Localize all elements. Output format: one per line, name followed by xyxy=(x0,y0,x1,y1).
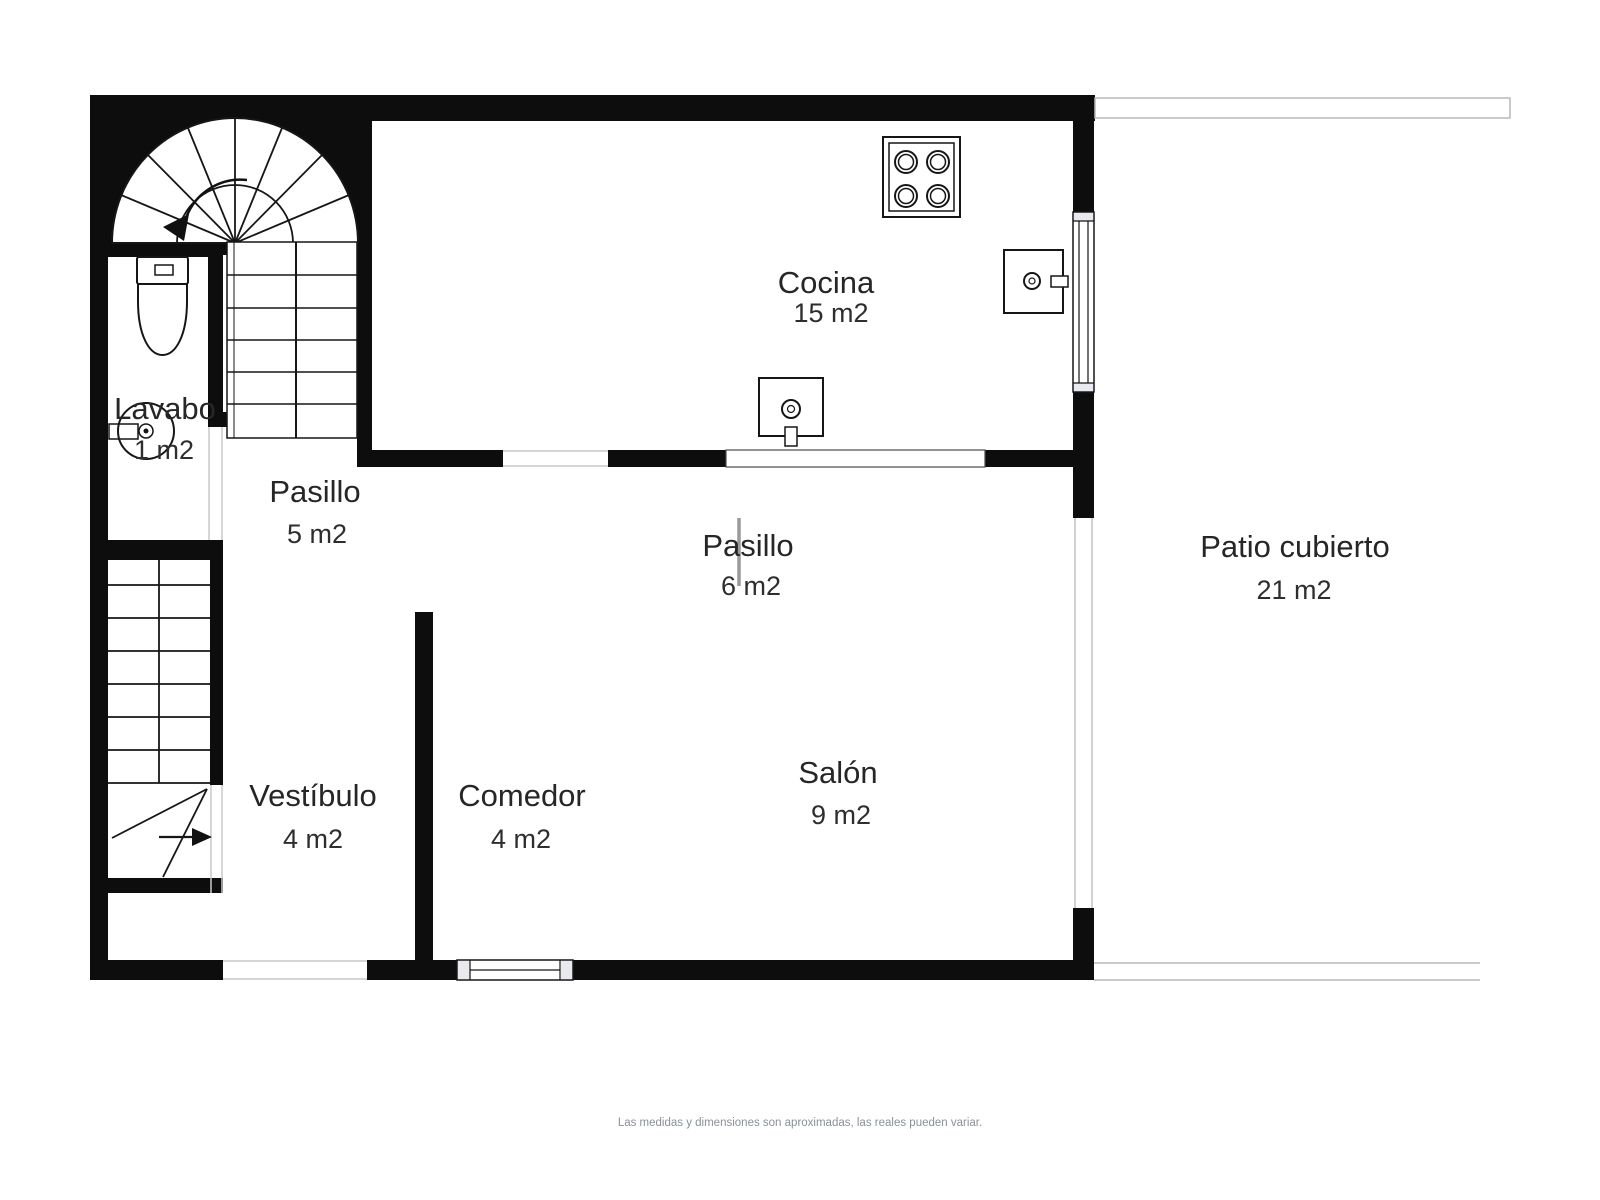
stairs-arrowhead-icon xyxy=(192,828,212,846)
room-name: Pasillo xyxy=(269,474,360,509)
toilet-button xyxy=(155,265,173,275)
patio-top-band xyxy=(1095,98,1510,118)
kitchen-wall-sink-icon xyxy=(1004,250,1068,313)
room-area: 6 m2 xyxy=(721,571,781,601)
room-area: 4 m2 xyxy=(283,824,343,854)
room-name: Salón xyxy=(798,755,877,790)
room-name: Vestíbulo xyxy=(249,778,377,813)
stove-icon xyxy=(883,137,960,217)
wall-stair-separator xyxy=(90,540,223,560)
room-label-pasillo-mid: Pasillo 6 m2 xyxy=(702,528,793,601)
straight-staircase-upper xyxy=(227,242,357,438)
glass-opening-patio xyxy=(1075,518,1092,908)
room-area: 15 m2 xyxy=(793,298,868,328)
wall-kitchen-bottom-1 xyxy=(357,450,503,467)
room-area: 4 m2 xyxy=(491,824,551,854)
wall-kitchen-bottom-3 xyxy=(985,450,1094,467)
room-name: Pasillo xyxy=(702,528,793,563)
room-area: 21 m2 xyxy=(1256,575,1331,605)
room-name: Patio cubierto xyxy=(1200,529,1390,564)
room-label-comedor: Comedor 4 m2 xyxy=(458,778,586,854)
staircase-lower xyxy=(108,560,212,877)
room-label-patio: Patio cubierto 21 m2 xyxy=(1200,529,1390,605)
room-name: Cocina xyxy=(778,265,875,300)
window-cap-bottom xyxy=(1074,383,1093,391)
toilet-icon xyxy=(137,257,188,355)
opening-frame xyxy=(726,450,985,467)
wall-comedor-left xyxy=(415,612,433,980)
room-label-pasillo-top: Pasillo 5 m2 xyxy=(269,474,360,549)
wall-right-upper xyxy=(1073,121,1094,212)
wall-stairs-kitchen xyxy=(357,95,372,467)
wall-left xyxy=(90,95,108,980)
toilet-bowl xyxy=(138,284,187,355)
sink-drain xyxy=(1024,273,1040,289)
wall-stairwell-right xyxy=(210,560,223,785)
sink-drain-dot xyxy=(144,429,149,434)
window-bottom-wall xyxy=(457,960,573,980)
stove-outline xyxy=(883,137,960,217)
wall-lavabo-top xyxy=(90,245,223,257)
window-right-wall xyxy=(1073,212,1094,392)
window-cap-right xyxy=(561,961,572,979)
wall-bottom-1 xyxy=(90,960,223,980)
room-label-cocina: Cocina 15 m2 xyxy=(778,265,875,328)
sink-drain xyxy=(782,400,800,418)
window-cap-left xyxy=(458,961,470,979)
wall-kitchen-bottom-2 xyxy=(608,450,726,467)
kitchen-pass-opening xyxy=(726,450,985,467)
room-label-salon: Salón 9 m2 xyxy=(798,755,877,830)
floorplan-svg: Cocina 15 m2 Lavabo 1 m2 Pasillo 5 m2 Pa… xyxy=(0,0,1600,1200)
wall-bottom-3 xyxy=(573,960,1094,980)
room-label-vestibulo: Vestíbulo 4 m2 xyxy=(249,778,377,854)
window-frame xyxy=(1073,212,1094,392)
wall-bottom-2 xyxy=(367,960,457,980)
sink-tap xyxy=(785,427,797,446)
room-name: Lavabo xyxy=(114,391,216,426)
door-openings xyxy=(209,427,739,979)
room-area: 9 m2 xyxy=(811,800,871,830)
wall-top xyxy=(372,95,1095,121)
room-area: 1 m2 xyxy=(134,435,194,465)
window-cap-top xyxy=(1074,213,1093,221)
room-name: Comedor xyxy=(458,778,586,813)
wall-stairwell-bottom xyxy=(108,878,223,893)
floorplan-canvas: Cocina 15 m2 Lavabo 1 m2 Pasillo 5 m2 Pa… xyxy=(0,0,1600,1200)
footer-disclaimer: Las medidas y dimensiones son aproximada… xyxy=(618,1117,982,1129)
kitchen-island-sink-icon xyxy=(759,378,823,446)
sink-tap xyxy=(1051,276,1068,287)
room-area: 5 m2 xyxy=(287,519,347,549)
